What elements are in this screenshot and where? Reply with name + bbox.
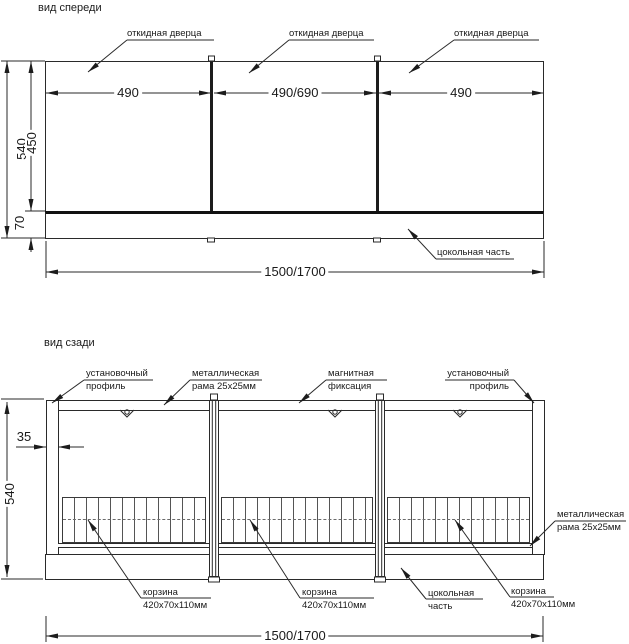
magnetic-fixation-label: магнитная фиксация xyxy=(328,367,374,393)
mounting-profile-left-label-line1: установочный xyxy=(86,367,148,380)
magnetic-fixation-label-line2: фиксация xyxy=(328,380,374,393)
mounting-profile-right-label-line2: профиль xyxy=(440,380,509,393)
front-dim-width-1: 490 xyxy=(114,86,142,100)
front-view-title: вид спереди xyxy=(38,2,102,14)
metal-frame-top-label-line1: металлическая xyxy=(192,367,259,380)
back-dim-height-total: 540 xyxy=(3,481,17,507)
back-plinth-label-line2: часть xyxy=(428,600,474,613)
metal-frame-top-label-line2: рама 25х25мм xyxy=(192,380,259,393)
back-plinth-label-line1: цокольная xyxy=(428,587,474,600)
front-hinge-caps-and-feet xyxy=(208,56,381,242)
door-label-3: откидная дверца xyxy=(454,27,529,40)
magnetic-fixation-label-line1: магнитная xyxy=(328,367,374,380)
magnetic-clip-icon xyxy=(453,410,467,417)
basket-3-label: корзина 420х70х110мм xyxy=(511,585,575,611)
front-plinth-label: цокольная часть xyxy=(437,246,510,259)
metal-frame-right-label-line2: рама 25х25мм xyxy=(557,521,624,534)
magnetic-clip-icons xyxy=(120,410,467,417)
basket-1-label: корзина 420х70х110мм xyxy=(143,586,207,612)
magnetic-clip-icon xyxy=(328,410,342,417)
front-leader-lines xyxy=(88,40,539,259)
front-dim-height-plinth: 70 xyxy=(13,214,27,232)
door-label-1: откидная дверца xyxy=(127,27,202,40)
back-dim-profile-width: 35 xyxy=(14,430,34,444)
back-dim-total-width: 1500/1700 xyxy=(261,629,328,643)
basket-2-label-line2: 420х70х110мм xyxy=(302,599,366,612)
metal-frame-right-label-line1: металлическая xyxy=(557,508,624,521)
basket-2-label: корзина 420х70х110мм xyxy=(302,586,366,612)
mounting-profile-right-label-line1: установочный xyxy=(440,367,509,380)
mounting-profile-right-label: установочный профиль xyxy=(440,367,509,393)
basket-2-label-line1: корзина xyxy=(302,586,366,599)
front-dim-width-2: 490/690 xyxy=(269,86,322,100)
back-post-caps-and-feet xyxy=(209,394,386,582)
door-label-2: откидная дверца xyxy=(289,27,364,40)
back-plinth-label: цокольная часть xyxy=(428,587,474,613)
basket-1-label-line2: 420х70х110мм xyxy=(143,599,207,612)
front-dim-height-door: 450 xyxy=(25,130,39,156)
technical-drawing: вид спереди откидная дверца откидная две… xyxy=(0,0,629,644)
back-view-title: вид сзади xyxy=(44,337,95,349)
mounting-profile-left-label-line2: профиль xyxy=(86,380,148,393)
magnetic-clip-icon xyxy=(120,410,134,417)
basket-3-label-line1: корзина xyxy=(511,585,575,598)
mounting-profile-left-label: установочный профиль xyxy=(86,367,148,393)
front-dim-width-3: 490 xyxy=(447,86,475,100)
basket-3-label-line2: 420х70х110мм xyxy=(511,598,575,611)
metal-frame-top-label: металлическая рама 25х25мм xyxy=(192,367,259,393)
front-dim-total-width: 1500/1700 xyxy=(261,265,328,279)
back-post-inner-lines xyxy=(212,400,381,577)
metal-frame-right-label: металлическая рама 25х25мм xyxy=(557,508,624,534)
basket-1-label-line1: корзина xyxy=(143,586,207,599)
